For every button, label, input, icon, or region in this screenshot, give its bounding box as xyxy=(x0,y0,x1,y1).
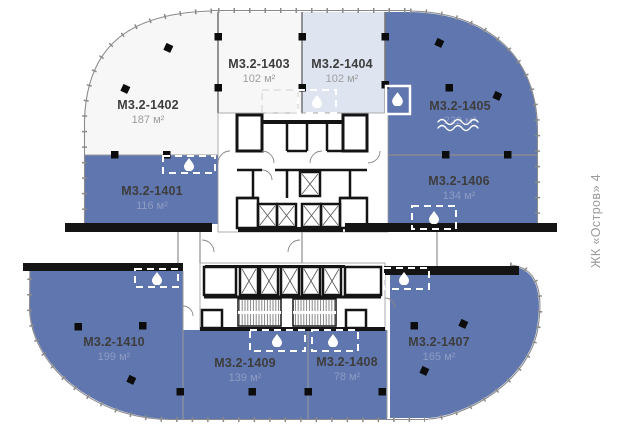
unit-1404-id: М3.2-1404 xyxy=(284,58,400,71)
core-upper xyxy=(218,113,388,232)
unit-1404-area: 102 м² xyxy=(284,73,400,86)
unit-1410-area: 199 м² xyxy=(56,351,172,364)
unit-1402-area: 187 м² xyxy=(90,114,206,127)
unit-1401-area: 116 м² xyxy=(94,200,210,213)
unit-1406-area: 134 м² xyxy=(401,190,517,203)
unit-1405[interactable]: М3.2-1405 222 м² xyxy=(402,100,518,128)
unit-1409-area: 139 м² xyxy=(187,372,303,385)
section-connectors xyxy=(178,232,437,266)
unit-1409[interactable]: М3.2-1409 139 м² xyxy=(187,357,303,385)
unit-1401[interactable]: М3.2-1401 116 м² xyxy=(94,185,210,213)
unit-1402-id: М3.2-1402 xyxy=(90,99,206,112)
unit-1401-id: М3.2-1401 xyxy=(94,185,210,198)
unit-1408-id: М3.2-1408 xyxy=(289,356,405,369)
floorplan-page: М3.2-1401 116 м² М3.2-1402 187 м² М3.2-1… xyxy=(0,0,631,432)
unit-1405-area: 222 м² xyxy=(402,115,518,128)
unit-1407-id: М3.2-1407 xyxy=(381,336,497,349)
unit-1409-id: М3.2-1409 xyxy=(187,357,303,370)
unit-1408[interactable]: М3.2-1408 78 м² xyxy=(289,356,405,384)
unit-1402[interactable]: М3.2-1402 187 м² xyxy=(90,99,206,127)
unit-region-1402[interactable] xyxy=(85,12,218,155)
project-vertical-label: ЖК «Остров» 4 xyxy=(589,161,603,281)
unit-1408-area: 78 м² xyxy=(289,371,405,384)
unit-1406[interactable]: М3.2-1406 134 м² xyxy=(401,175,517,203)
core-lower xyxy=(200,263,385,330)
unit-1405-id: М3.2-1405 xyxy=(402,100,518,113)
unit-1410[interactable]: М3.2-1410 199 м² xyxy=(56,336,172,364)
unit-1410-id: М3.2-1410 xyxy=(56,336,172,349)
unit-1404[interactable]: М3.2-1404 102 м² xyxy=(284,58,400,86)
unit-region-1405[interactable] xyxy=(385,12,537,155)
unit-1406-id: М3.2-1406 xyxy=(401,175,517,188)
